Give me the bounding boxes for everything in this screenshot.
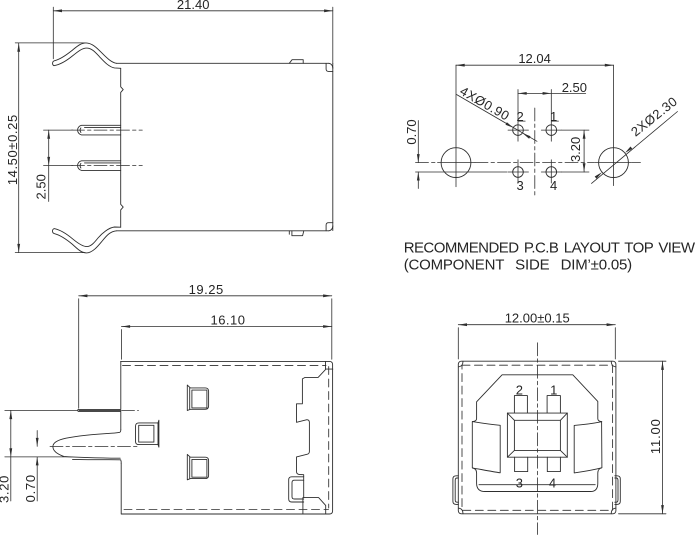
svg-text:4: 4 — [549, 475, 556, 490]
svg-text:3.20: 3.20 — [0, 475, 12, 503]
svg-text:0.70: 0.70 — [404, 119, 419, 144]
svg-text:3.20: 3.20 — [568, 137, 583, 162]
svg-text:12.00±0.15: 12.00±0.15 — [505, 311, 570, 326]
svg-text:3: 3 — [516, 475, 523, 490]
svg-text:4: 4 — [550, 178, 557, 193]
svg-text:0.70: 0.70 — [23, 474, 38, 502]
svg-text:12.04: 12.04 — [518, 51, 551, 66]
svg-text:2.50: 2.50 — [34, 174, 49, 199]
svg-text:19.25: 19.25 — [189, 282, 224, 297]
svg-text:2: 2 — [516, 383, 523, 398]
svg-text:16.10: 16.10 — [210, 312, 245, 327]
svg-text:2.50: 2.50 — [562, 80, 587, 95]
svg-text:RECOMMENDED P.C.B LAYOUT TOP V: RECOMMENDED P.C.B LAYOUT TOP VIEW — [404, 239, 696, 256]
svg-text:2: 2 — [517, 109, 524, 124]
svg-text:1: 1 — [550, 383, 557, 398]
svg-text:1: 1 — [550, 109, 557, 124]
svg-text:2XØ2.30: 2XØ2.30 — [628, 93, 680, 139]
svg-text:11.00: 11.00 — [648, 418, 663, 454]
svg-text:21.40: 21.40 — [177, 0, 210, 12]
svg-text:4XØ0.90: 4XØ0.90 — [457, 83, 512, 123]
svg-text:14.50±0.25: 14.50±0.25 — [5, 114, 20, 185]
svg-text:(COMPONENT SIDE DIM’±0.05): (COMPONENT SIDE DIM’±0.05) — [404, 256, 632, 273]
svg-text:3: 3 — [517, 178, 524, 193]
